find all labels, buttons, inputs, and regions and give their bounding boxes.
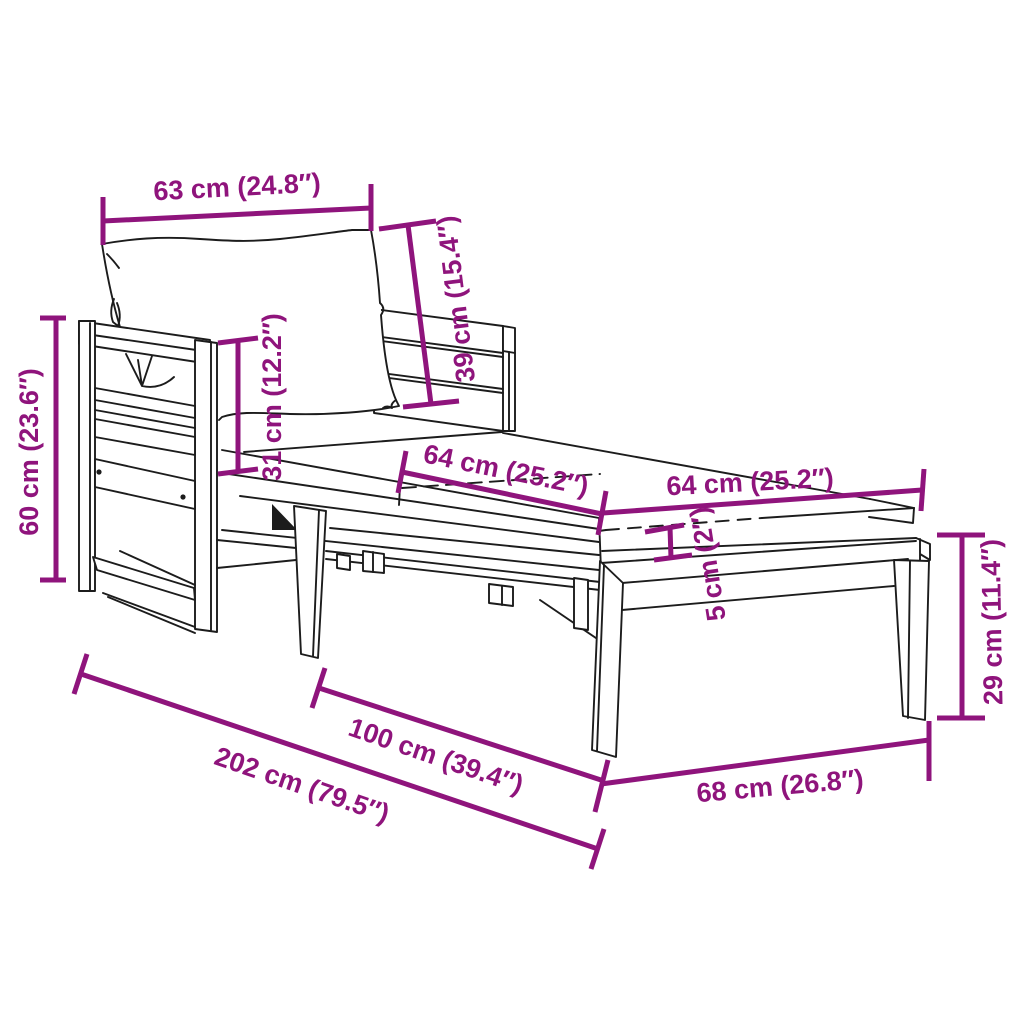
svg-text:31 cm (12.2″): 31 cm (12.2″): [257, 313, 287, 481]
svg-text:29 cm (11.4″): 29 cm (11.4″): [976, 539, 1009, 706]
svg-text:60 cm (23.6″): 60 cm (23.6″): [14, 368, 44, 536]
